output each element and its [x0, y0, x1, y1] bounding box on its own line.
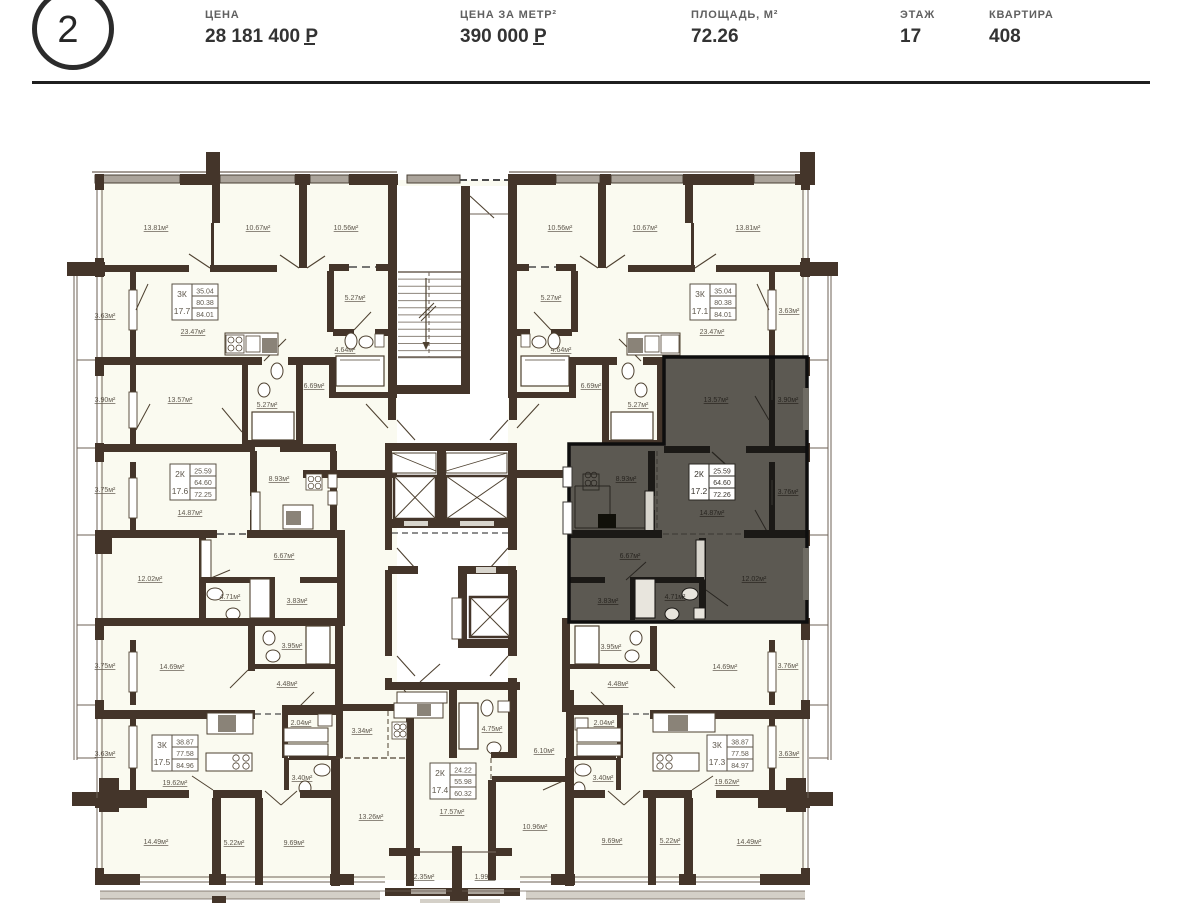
- svg-text:5.27м²: 5.27м²: [345, 295, 366, 302]
- svg-text:25.59: 25.59: [194, 469, 212, 476]
- svg-text:3.63м²: 3.63м²: [779, 751, 800, 758]
- svg-text:5.27м²: 5.27м²: [541, 295, 562, 302]
- svg-text:8.93м²: 8.93м²: [616, 476, 637, 483]
- svg-text:84.96: 84.96: [176, 763, 194, 770]
- svg-text:14.49м²: 14.49м²: [737, 839, 762, 846]
- svg-text:3.34м²: 3.34м²: [352, 728, 373, 735]
- svg-text:3.90м²: 3.90м²: [95, 397, 116, 404]
- svg-text:84.97: 84.97: [731, 763, 749, 770]
- svg-text:3.95м²: 3.95м²: [601, 644, 622, 651]
- svg-text:3.76м²: 3.76м²: [778, 663, 799, 670]
- svg-text:13.57м²: 13.57м²: [168, 397, 193, 404]
- svg-text:17.6: 17.6: [172, 486, 189, 496]
- svg-text:35.04: 35.04: [196, 289, 214, 296]
- svg-text:23.47м²: 23.47м²: [700, 329, 725, 336]
- svg-text:72.26: 72.26: [713, 492, 731, 499]
- svg-text:4.48м²: 4.48м²: [608, 681, 629, 688]
- svg-text:80.38: 80.38: [196, 300, 214, 307]
- svg-text:3К: 3К: [695, 289, 705, 299]
- svg-text:10.56м²: 10.56м²: [334, 225, 359, 232]
- svg-text:10.67м²: 10.67м²: [246, 225, 271, 232]
- svg-text:5.22м²: 5.22м²: [660, 838, 681, 845]
- svg-text:3.63м²: 3.63м²: [779, 308, 800, 315]
- svg-text:2.04м²: 2.04м²: [594, 720, 615, 727]
- svg-text:38.87: 38.87: [731, 740, 749, 747]
- svg-text:14.69м²: 14.69м²: [160, 664, 185, 671]
- svg-text:2К: 2К: [694, 469, 704, 479]
- svg-text:3К: 3К: [177, 289, 187, 299]
- svg-text:80.38: 80.38: [714, 300, 732, 307]
- svg-text:10.96м²: 10.96м²: [523, 824, 548, 831]
- svg-text:17.57м²: 17.57м²: [440, 809, 465, 816]
- svg-text:8.93м²: 8.93м²: [269, 476, 290, 483]
- svg-text:3.83м²: 3.83м²: [287, 598, 308, 605]
- svg-text:14.49м²: 14.49м²: [144, 839, 169, 846]
- svg-text:6.10м²: 6.10м²: [534, 748, 555, 755]
- svg-text:23.47м²: 23.47м²: [181, 329, 206, 336]
- svg-text:17.2: 17.2: [691, 486, 708, 496]
- svg-text:84.01: 84.01: [196, 312, 214, 319]
- svg-text:6.69м²: 6.69м²: [304, 383, 325, 390]
- svg-text:3.75м²: 3.75м²: [95, 487, 116, 494]
- svg-text:5.27м²: 5.27м²: [628, 402, 649, 409]
- svg-text:6.69м²: 6.69м²: [581, 383, 602, 390]
- svg-text:25.59: 25.59: [713, 469, 731, 476]
- svg-text:3.40м²: 3.40м²: [292, 775, 313, 782]
- svg-text:9.69м²: 9.69м²: [602, 838, 623, 845]
- svg-text:38.87: 38.87: [176, 740, 194, 747]
- svg-text:72.25: 72.25: [194, 492, 212, 499]
- svg-text:3.40м²: 3.40м²: [593, 775, 614, 782]
- svg-text:55.98: 55.98: [454, 779, 472, 786]
- svg-text:17.4: 17.4: [432, 785, 449, 795]
- svg-text:14.69м²: 14.69м²: [713, 664, 738, 671]
- svg-text:17.1: 17.1: [692, 306, 709, 316]
- svg-text:10.67м²: 10.67м²: [633, 225, 658, 232]
- svg-text:84.01: 84.01: [714, 312, 732, 319]
- svg-text:17.5: 17.5: [154, 757, 171, 767]
- svg-text:35.04: 35.04: [714, 289, 732, 296]
- svg-text:17.3: 17.3: [709, 757, 726, 767]
- svg-text:3.63м²: 3.63м²: [95, 313, 116, 320]
- svg-text:13.26м²: 13.26м²: [359, 814, 384, 821]
- svg-text:6.67м²: 6.67м²: [274, 553, 295, 560]
- svg-text:14.87м²: 14.87м²: [178, 510, 203, 517]
- svg-text:4.71м²: 4.71м²: [665, 594, 686, 601]
- svg-text:13.81м²: 13.81м²: [144, 225, 169, 232]
- svg-text:10.56м²: 10.56м²: [548, 225, 573, 232]
- svg-text:2.35м²: 2.35м²: [414, 874, 435, 881]
- svg-text:3К: 3К: [157, 740, 167, 750]
- svg-text:2.04м²: 2.04м²: [291, 720, 312, 727]
- svg-text:12.02м²: 12.02м²: [138, 576, 163, 583]
- svg-text:5.22м²: 5.22м²: [224, 840, 245, 847]
- svg-text:13.57м²: 13.57м²: [704, 397, 729, 404]
- svg-text:19.62м²: 19.62м²: [163, 780, 188, 787]
- svg-text:4.75м²: 4.75м²: [482, 726, 503, 733]
- svg-text:64.60: 64.60: [713, 480, 731, 487]
- svg-text:2К: 2К: [175, 469, 185, 479]
- svg-text:60.32: 60.32: [454, 791, 472, 798]
- svg-text:5.27м²: 5.27м²: [257, 402, 278, 409]
- svg-text:24.22: 24.22: [454, 768, 472, 775]
- svg-text:14.87м²: 14.87м²: [700, 510, 725, 517]
- svg-text:3.76м²: 3.76м²: [778, 489, 799, 496]
- svg-text:77.58: 77.58: [176, 751, 194, 758]
- svg-text:77.58: 77.58: [731, 751, 749, 758]
- svg-text:3К: 3К: [712, 740, 722, 750]
- svg-text:13.81м²: 13.81м²: [736, 225, 761, 232]
- svg-text:3.83м²: 3.83м²: [598, 598, 619, 605]
- svg-text:19.62м²: 19.62м²: [715, 779, 740, 786]
- svg-text:9.69м²: 9.69м²: [284, 840, 305, 847]
- svg-text:6.67м²: 6.67м²: [620, 553, 641, 560]
- svg-text:4.71м²: 4.71м²: [220, 594, 241, 601]
- svg-text:2К: 2К: [435, 768, 445, 778]
- svg-text:3.63м²: 3.63м²: [95, 751, 116, 758]
- svg-text:3.90м²: 3.90м²: [778, 397, 799, 404]
- svg-text:3.75м²: 3.75м²: [95, 663, 116, 670]
- svg-text:17.7: 17.7: [174, 306, 191, 316]
- svg-text:3.95м²: 3.95м²: [282, 643, 303, 650]
- svg-text:12.02м²: 12.02м²: [742, 576, 767, 583]
- svg-text:64.60: 64.60: [194, 480, 212, 487]
- svg-text:4.48м²: 4.48м²: [277, 681, 298, 688]
